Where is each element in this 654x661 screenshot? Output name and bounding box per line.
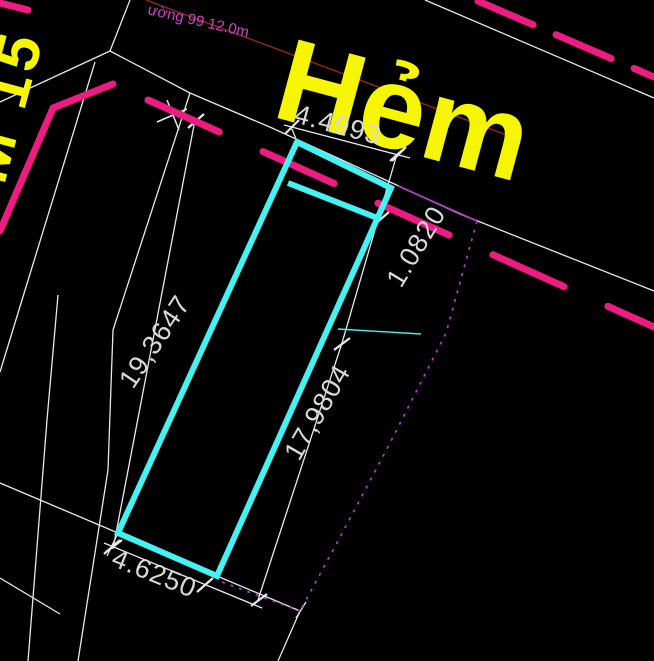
cad-canvas: Hẻm M 15 ường 99 12.0m 4.4993 1.0820 19,… <box>0 0 654 661</box>
rear-boundary <box>217 576 300 661</box>
rear-neighbor-line-2 <box>0 578 60 614</box>
thin-cyan-leader <box>338 329 421 334</box>
plot-outline <box>118 142 421 576</box>
road-width-note: ường 99 12.0m <box>146 1 250 41</box>
cad-drawing: Hẻm M 15 ường 99 12.0m 4.4993 1.0820 19,… <box>0 0 654 661</box>
dim-left-side: 19,3647 <box>113 290 196 394</box>
road-centerline-top-right <box>478 1 654 77</box>
rear-neighbor-line-1 <box>0 483 118 533</box>
road-dash-top-left <box>0 3 28 10</box>
purple-boundary-lines <box>222 186 477 611</box>
plot-setback-division <box>288 183 380 219</box>
left-boundary-2 <box>28 295 58 661</box>
dim-setback-offset: 1.0820 <box>380 201 451 292</box>
